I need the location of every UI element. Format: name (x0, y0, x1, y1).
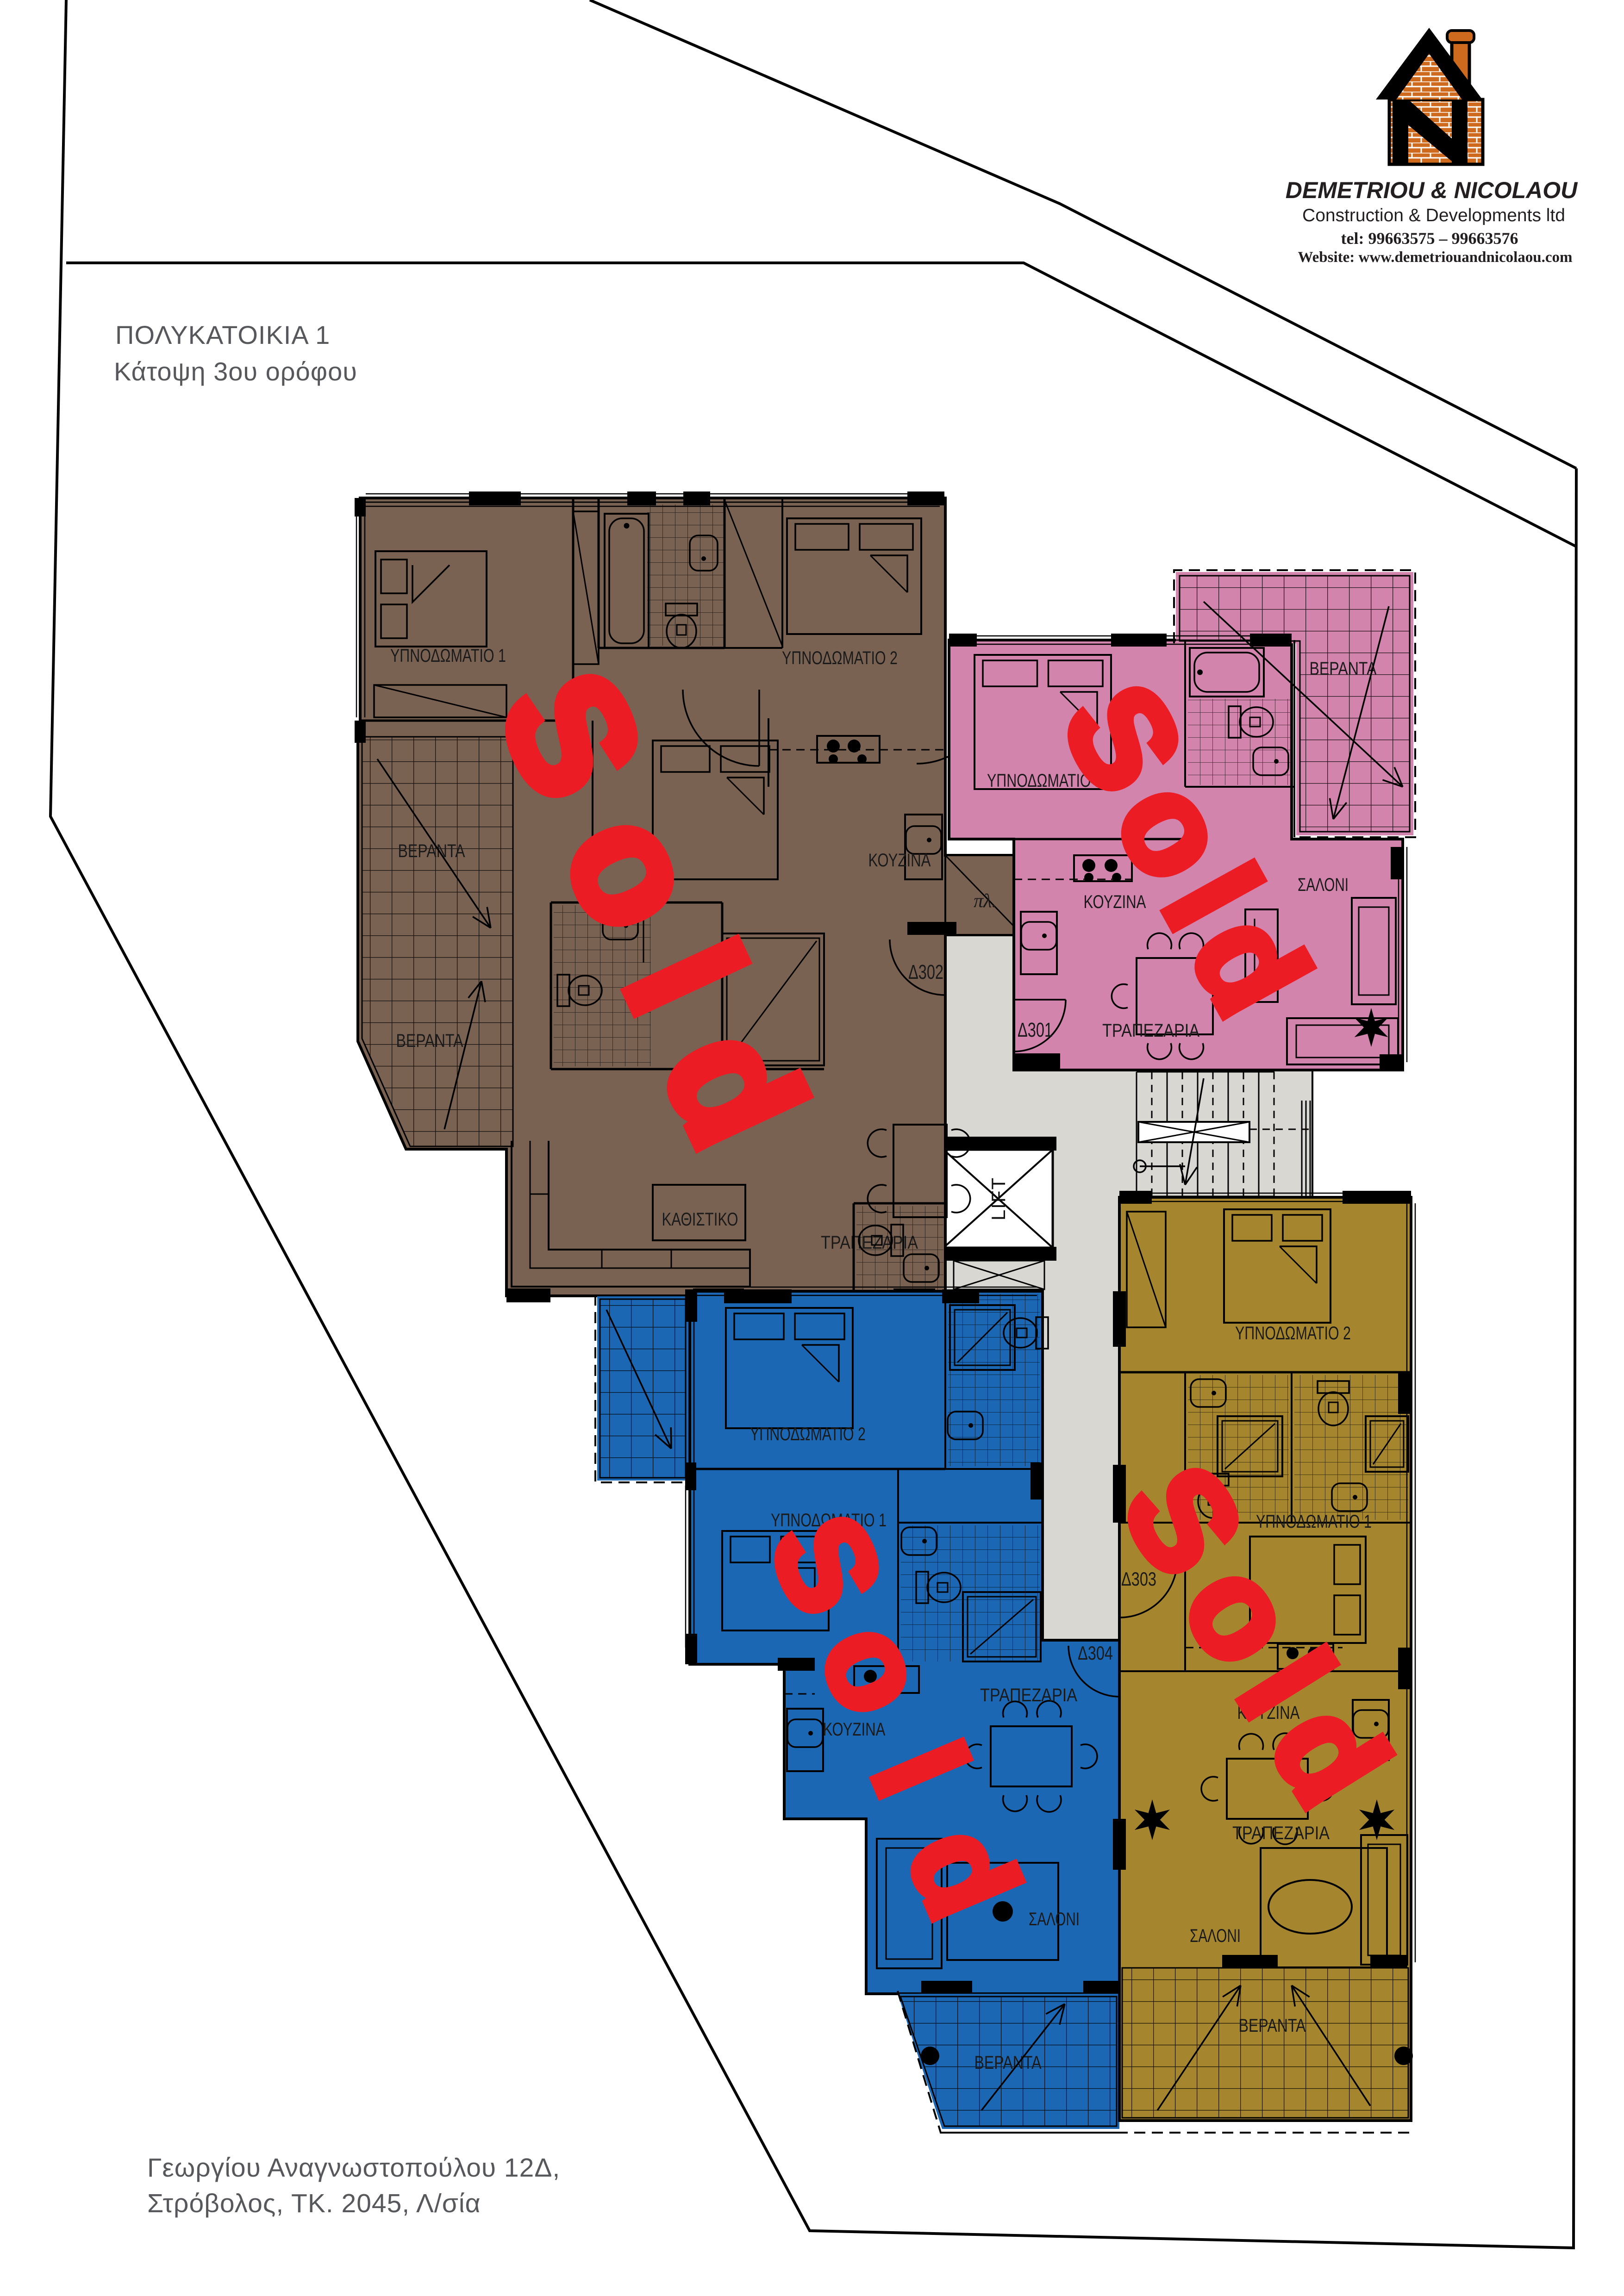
svg-text:Construction & Developments lt: Construction & Developments ltd (1302, 205, 1565, 225)
svg-text:Δ302: Δ302 (908, 961, 943, 983)
svg-text:ΤΡΑΠΕΖΑΡΙΑ: ΤΡΑΠΕΖΑΡΙΑ (1102, 1020, 1199, 1041)
svg-text:ΚΟΥΖΙΝΑ: ΚΟΥΖΙΝΑ (868, 850, 931, 871)
svg-text:ΣΑΛΟΝΙ: ΣΑΛΟΝΙ (1190, 1926, 1241, 1946)
svg-text:πλ.: πλ. (974, 890, 997, 912)
svg-text:Στρόβολος, ΤΚ. 2045, Λ/σία: Στρόβολος, ΤΚ. 2045, Λ/σία (147, 2189, 481, 2218)
svg-text:ΣΑΛΟΝΙ: ΣΑΛΟΝΙ (1298, 875, 1349, 895)
svg-text:ΚΑΘΙΣΤΙΚΟ: ΚΑΘΙΣΤΙΚΟ (662, 1209, 738, 1230)
svg-text:ΥΠΝΟΔΩΜΑΤΙΟ 2: ΥΠΝΟΔΩΜΑΤΙΟ 2 (1235, 1323, 1351, 1344)
svg-text:ΒΕΡΑΝΤΑ: ΒΕΡΑΝΤΑ (398, 841, 465, 861)
svg-text:ΥΠΝΟΔΩΜΑΤΙΟ 1: ΥΠΝΟΔΩΜΑΤΙΟ 1 (1256, 1512, 1372, 1532)
svg-text:ΒΕΡΑΝΤΑ: ΒΕΡΑΝΤΑ (1310, 659, 1377, 679)
svg-text:ΒΕΡΑΝΤΑ: ΒΕΡΑΝΤΑ (974, 2053, 1042, 2073)
svg-text:ΥΠΝΟΔΩΜΑΤΙΟ 2: ΥΠΝΟΔΩΜΑΤΙΟ 2 (750, 1424, 866, 1444)
svg-text:tel: 99663575 – 99663576: tel: 99663575 – 99663576 (1341, 229, 1518, 248)
svg-text:LIFT: LIFT (987, 1177, 1009, 1220)
svg-text:DEMETRIOU & NICOLAOU: DEMETRIOU & NICOLAOU (1286, 177, 1578, 203)
svg-text:ΣΑΛΟΝΙ: ΣΑΛΟΝΙ (1029, 1909, 1080, 1929)
svg-text:ΥΠΝΟΔΩΜΑΤΙΟ 2: ΥΠΝΟΔΩΜΑΤΙΟ 2 (782, 648, 898, 668)
svg-text:Δ304: Δ304 (1078, 1642, 1113, 1664)
svg-text:Κάτοψη 3ου ορόφου: Κάτοψη 3ου ορόφου (114, 357, 357, 386)
svg-text:ΤΡΑΠΕΖΑΡΙΑ: ΤΡΑΠΕΖΑΡΙΑ (980, 1685, 1077, 1705)
svg-text:ΒΕΡΑΝΤΑ: ΒΕΡΑΝΤΑ (1239, 2016, 1306, 2036)
svg-text:ΤΡΑΠΕΖΑΡΙΑ: ΤΡΑΠΕΖΑΡΙΑ (1232, 1823, 1330, 1843)
svg-text:Website: www.demetriouandnicol: Website: www.demetriouandnicolaou.com (1298, 249, 1572, 266)
svg-text:ΥΠΝΟΔΩΜΑΤΙΟ 1: ΥΠΝΟΔΩΜΑΤΙΟ 1 (390, 646, 506, 666)
svg-text:Γεωργίου Αναγνωστοπούλου 12Δ,: Γεωργίου Αναγνωστοπούλου 12Δ, (147, 2153, 560, 2183)
svg-text:Δ301: Δ301 (1018, 1019, 1053, 1041)
svg-text:ΠΟΛΥΚΑΤΟΙΚΙΑ 1: ΠΟΛΥΚΑΤΟΙΚΙΑ 1 (115, 320, 330, 349)
svg-text:ΒΕΡΑΝΤΑ: ΒΕΡΑΝΤΑ (396, 1031, 463, 1051)
